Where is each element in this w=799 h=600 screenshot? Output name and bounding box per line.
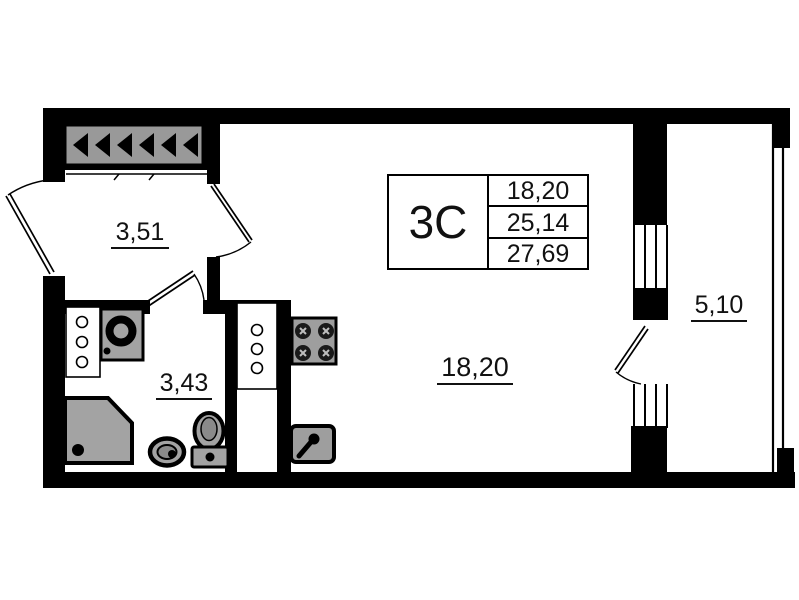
utility-shaft-kitchen (237, 303, 277, 389)
hall-room-wall-lower (207, 257, 220, 302)
living-room-door (211, 184, 252, 257)
hallway-area-label: 3,51 (116, 218, 165, 246)
shower-tray (65, 398, 132, 463)
balcony-corner-top (772, 108, 790, 148)
tick (149, 174, 154, 180)
kitchen-shaft-wall (277, 302, 291, 472)
toilet (192, 413, 228, 467)
balcony-door (615, 326, 648, 384)
bathroom-sink (150, 439, 184, 466)
unit-area-row-3: 27,69 (507, 240, 570, 268)
kitchen-sink (291, 426, 334, 462)
balcony-partition-upper (633, 124, 667, 225)
unit-area-row-1: 18,20 (507, 177, 570, 205)
unit-type-label: 3С (409, 196, 468, 248)
vent-block (55, 108, 207, 180)
balcony-glazing (773, 124, 783, 477)
washing-machine (101, 309, 143, 360)
floor-plan: 3,51 3,43 18,20 5,10 3С 18,20 25,14 27,6… (0, 0, 799, 600)
utility-shaft-bathroom (66, 307, 100, 377)
balcony-area-label: 5,10 (695, 291, 744, 319)
living-room-area-label: 18,20 (441, 352, 509, 382)
entrance-door (6, 180, 54, 274)
bathroom-door (145, 271, 204, 307)
unit-info-box: 3С 18,20 25,14 27,69 (388, 175, 588, 269)
left-wall-lower (43, 276, 65, 488)
unit-area-row-2: 25,14 (507, 209, 570, 237)
balcony-partition-lower (631, 426, 667, 472)
stove (292, 318, 336, 364)
balcony-partition-window-upper (634, 225, 667, 290)
bottom-wall (43, 472, 795, 488)
tick (114, 174, 119, 180)
bathroom-area-label: 3,43 (160, 369, 209, 397)
balcony-partition-window-lower (634, 384, 667, 428)
hall-room-wall-upper (207, 124, 220, 184)
balcony-corner-bottom (777, 448, 794, 487)
balcony-partition-pier (633, 288, 668, 320)
